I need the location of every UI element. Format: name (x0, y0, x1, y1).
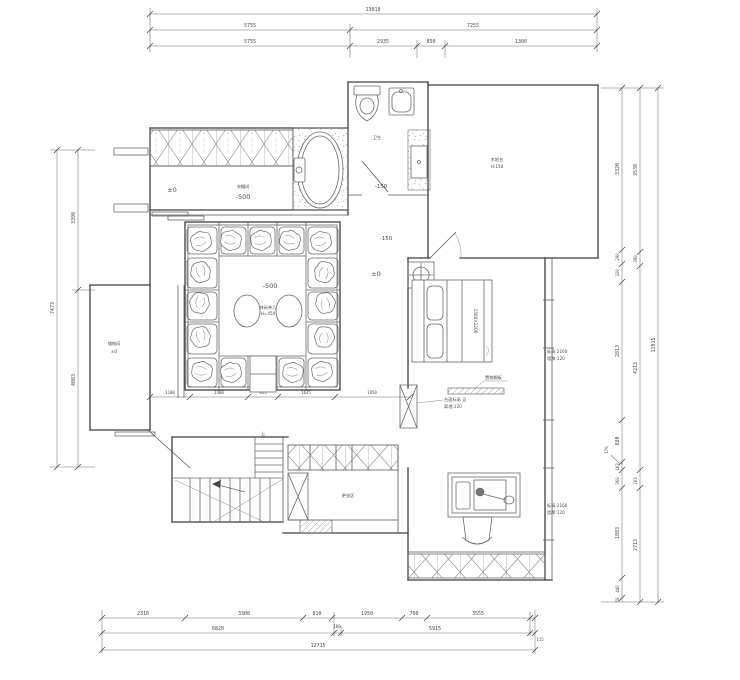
dim-left-total: 7473 (50, 302, 56, 314)
shelf-note1-label: 台面标高 见 (444, 396, 466, 403)
bed: 1500×2200 (412, 280, 492, 362)
dim-top-3c: 850 (426, 39, 435, 45)
shelf-note2-label: 离地:120 (444, 403, 462, 410)
desk-lamp (476, 488, 484, 496)
entry-level-label: ±0 (371, 270, 381, 278)
dim-left-b: 4083 (71, 374, 77, 386)
room-door-leaf (430, 232, 456, 258)
bottom-hatch-strip (408, 554, 545, 578)
dim-bot-1c: 810 (312, 611, 321, 617)
storage-room: 储物间 ±0 (108, 340, 121, 354)
stair-up-label: 上 (261, 430, 265, 436)
display-shelf: 置物搁板 台面标高 见 离地:120 (444, 374, 508, 410)
dim-chain-right: 3320 290 320 2813 880 163 360 1883 440 5… (601, 85, 664, 605)
dim-int-4: 1635 (301, 390, 311, 395)
dim-right-m2: 390 (633, 255, 638, 263)
stair-direction-arrow (212, 480, 221, 488)
dim-bot-1e: 700 (409, 611, 418, 617)
dim-top-3d: 1300 (515, 39, 527, 45)
store-note2-label: ±0 (111, 349, 118, 354)
stairs: 上 (172, 430, 283, 522)
dim-int-5: 1950 (367, 390, 377, 395)
floor-plan-canvas: 13010 5755 7255 5755 2935 850 1300 2310 … (0, 0, 740, 680)
hall-level-label: -150 (380, 236, 393, 242)
bathroom: 卫生 -150 (354, 86, 430, 190)
dim-bot-2d: 115 (536, 637, 544, 642)
dim-right-m5: 2713 (633, 539, 639, 551)
wash-basin (389, 88, 414, 115)
tatami-note2-label: H:150 (491, 164, 504, 169)
wardrobe (150, 130, 293, 166)
mid-closet (288, 445, 398, 470)
wall-column (400, 385, 443, 428)
dim-bot-1b: 3300 (238, 611, 250, 617)
dim-right-total: 11015 (651, 337, 657, 352)
desk-chair (462, 517, 492, 544)
dim-top-total: 13010 (365, 7, 380, 13)
tl-level-label: ±0 (167, 186, 177, 194)
tatami-room: 木地台 H:150 (491, 156, 504, 169)
dim-right-i2: 290 (615, 253, 620, 261)
dim-right-i10: 50 (615, 597, 620, 602)
wall-note1-label: 标高:2160 (547, 348, 568, 355)
shelf-label: 置物搁板 (485, 374, 503, 381)
dim-right-i1: 3320 (615, 163, 621, 175)
desk (448, 473, 520, 517)
pit-level-label: -500 (263, 282, 278, 290)
dim-bot-1d: 1950 (361, 611, 373, 617)
shower-niche (408, 130, 430, 190)
bath-level-label: -150 (375, 184, 388, 190)
dim-right-m4: 163 (633, 477, 638, 485)
dim-right-i5: 880 (615, 436, 621, 445)
dim-int-2: 1480 (214, 390, 224, 395)
dim-top-3b: 2935 (377, 39, 389, 45)
wall-note2-label: 墙厚:120 (547, 355, 565, 362)
dim-bot-1a: 2310 (137, 611, 149, 617)
pit-note-label: 休闲茶几 (260, 304, 278, 311)
dim-right-i6: 163 (615, 463, 620, 471)
entry-hatch-step (300, 520, 332, 533)
dim-right-leader: 170 (604, 446, 609, 454)
bathtub (293, 128, 348, 210)
toilet (354, 86, 380, 121)
dim-int-1: 1100 (165, 390, 175, 395)
dim-right-m3: 4213 (633, 362, 639, 374)
dressing-room: 更衣区 (288, 473, 398, 533)
dim-top-2b: 7255 (467, 23, 479, 29)
dim-top-3a: 5755 (244, 39, 256, 45)
dim-right-i4: 2813 (615, 345, 621, 357)
dress-note-label: 更衣区 (342, 492, 355, 499)
dim-left-a: 3390 (71, 212, 77, 224)
tatami-note-label: 木地台 (491, 156, 504, 163)
dim-right-i9: 440 (615, 585, 620, 593)
wall-note3-label: 标高:2160 (547, 502, 568, 509)
dim-right-m1: 3530 (633, 164, 639, 176)
bathroom-label: 卫生 (373, 134, 381, 140)
dim-right-i8: 1883 (615, 527, 621, 539)
closet-level-label: -500 (236, 193, 251, 201)
dim-chain-interior: 1100 1480 915 1635 1950 (147, 390, 413, 400)
pit-note2-label: H=450 (261, 311, 276, 316)
dim-chain-left: 3390 4083 7473 (50, 147, 95, 470)
bedroom: 1500×2200 置物搁板 台面标高 见 离地:120 标高:2160 墙厚:… (400, 262, 568, 578)
dim-chain-bottom: 2310 3300 810 1950 700 3555 6820 180 591… (99, 610, 544, 653)
dim-bot-2b: 180 (333, 624, 341, 629)
sunken-lounge: -500 休闲茶几 H=450 (185, 222, 340, 392)
bed-size-label: 1500×2200 (473, 309, 478, 334)
dim-right-i3: 320 (615, 269, 620, 277)
dim-chain-top: 13010 5755 7255 5755 2935 850 1300 (147, 7, 600, 58)
dim-bot-2c: 5915 (429, 626, 441, 632)
dim-top-2a: 5755 (244, 23, 256, 29)
dim-bot-2a: 6820 (212, 626, 224, 632)
dim-right-i7: 360 (615, 477, 620, 485)
closet-name-label: 衣帽间 (237, 183, 250, 190)
floor-plan-page: 13010 5755 7255 5755 2935 850 1300 2310 … (0, 0, 740, 680)
store-note-label: 储物间 (108, 340, 121, 347)
wall-note4-label: 墙厚:120 (547, 509, 565, 516)
dim-bot-total: 12715 (310, 643, 325, 649)
dim-bot-1f: 3555 (472, 611, 484, 617)
